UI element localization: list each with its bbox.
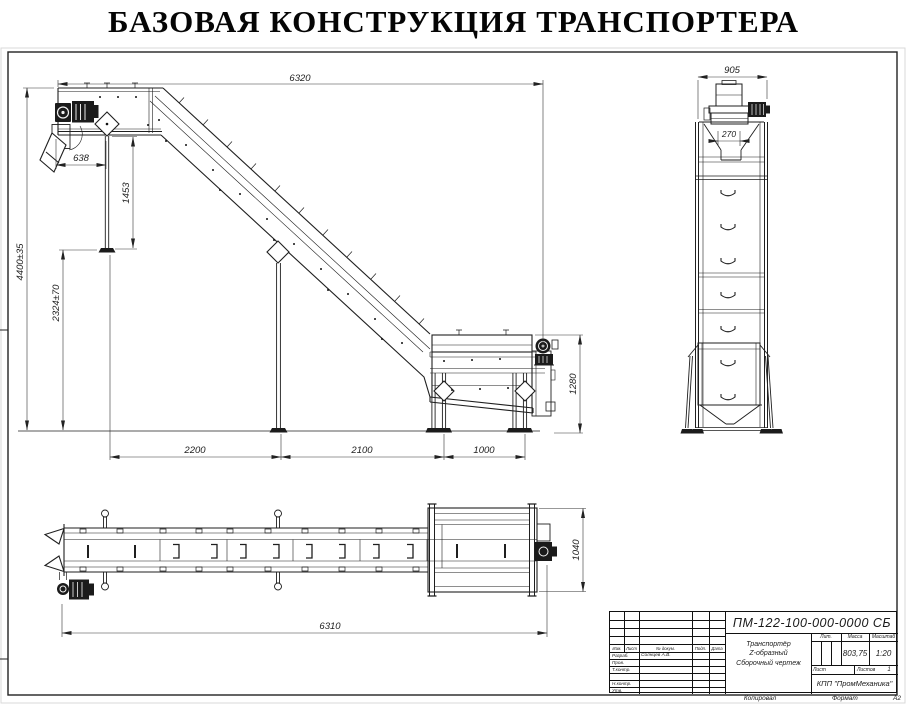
copied-label: Копировал <box>700 694 820 703</box>
row-developed: Разраб. <box>610 652 641 659</box>
doc-number: ПМ-122-100-000-0000 СБ <box>726 612 898 633</box>
engineering-drawing: 6320 638 1453 4400±35 2324±70 2200 2100 … <box>0 0 907 707</box>
company-name: КПП "ПромМеханика" <box>811 674 898 693</box>
format-value: А2 <box>893 695 901 702</box>
product-line2: Z-образный <box>749 649 787 658</box>
head-motor-icon <box>55 101 99 123</box>
scale-value: 1:20 <box>869 641 898 665</box>
dim-plan-length: 6310 <box>319 621 341 632</box>
product-line1: Транспортёр <box>746 640 790 649</box>
row-checked: Пров. <box>610 659 641 666</box>
dim-total-height: 4400±35 <box>15 243 26 281</box>
dim-span-a: 2200 <box>183 445 206 456</box>
lit-label: Лит. <box>811 633 841 641</box>
dim-span-b: 2100 <box>350 445 373 456</box>
col-list: Лист <box>624 644 639 652</box>
col-doc: № докум. <box>639 644 692 652</box>
dim-support-height: 2324±70 <box>51 284 62 323</box>
col-izm: Изм. <box>610 644 624 652</box>
dim-infeed-height: 1280 <box>568 373 579 395</box>
title-block: ПМ-122-100-000-0000 СБ Транспортёр Z-обр… <box>609 611 897 693</box>
dim-chute-width: 270 <box>721 129 736 139</box>
dim-end-width: 905 <box>724 65 741 76</box>
row-approved: Утв. <box>610 687 641 694</box>
col-date: Дата <box>709 644 725 652</box>
dim-head-offset: 638 <box>73 153 90 164</box>
product-name: Транспортёр Z-образный Сборочный чертеж <box>726 635 811 673</box>
format-label: Формат А2 <box>828 694 905 703</box>
dim-total-length: 6320 <box>289 73 311 84</box>
mass-value: 803,75 <box>841 641 869 665</box>
sheets-label: Листов <box>855 665 883 674</box>
mass-label: Масса <box>841 633 869 641</box>
row-tcontrol: Т.контр. <box>610 666 641 673</box>
dim-span-c: 1000 <box>473 445 495 456</box>
sheets-value: 1 <box>882 665 896 674</box>
scale-label: Масштаб <box>869 633 898 641</box>
product-line3: Сборочный чертеж <box>736 659 801 668</box>
dim-plan-width: 1040 <box>571 539 582 561</box>
col-sign: Подп. <box>692 644 709 652</box>
row-ncontrol: Н.контр. <box>610 680 641 687</box>
developer-name: Солнцев А.В. <box>639 652 694 659</box>
sheet-label: Лист <box>811 665 855 674</box>
dim-head-leg: 1453 <box>121 182 132 204</box>
